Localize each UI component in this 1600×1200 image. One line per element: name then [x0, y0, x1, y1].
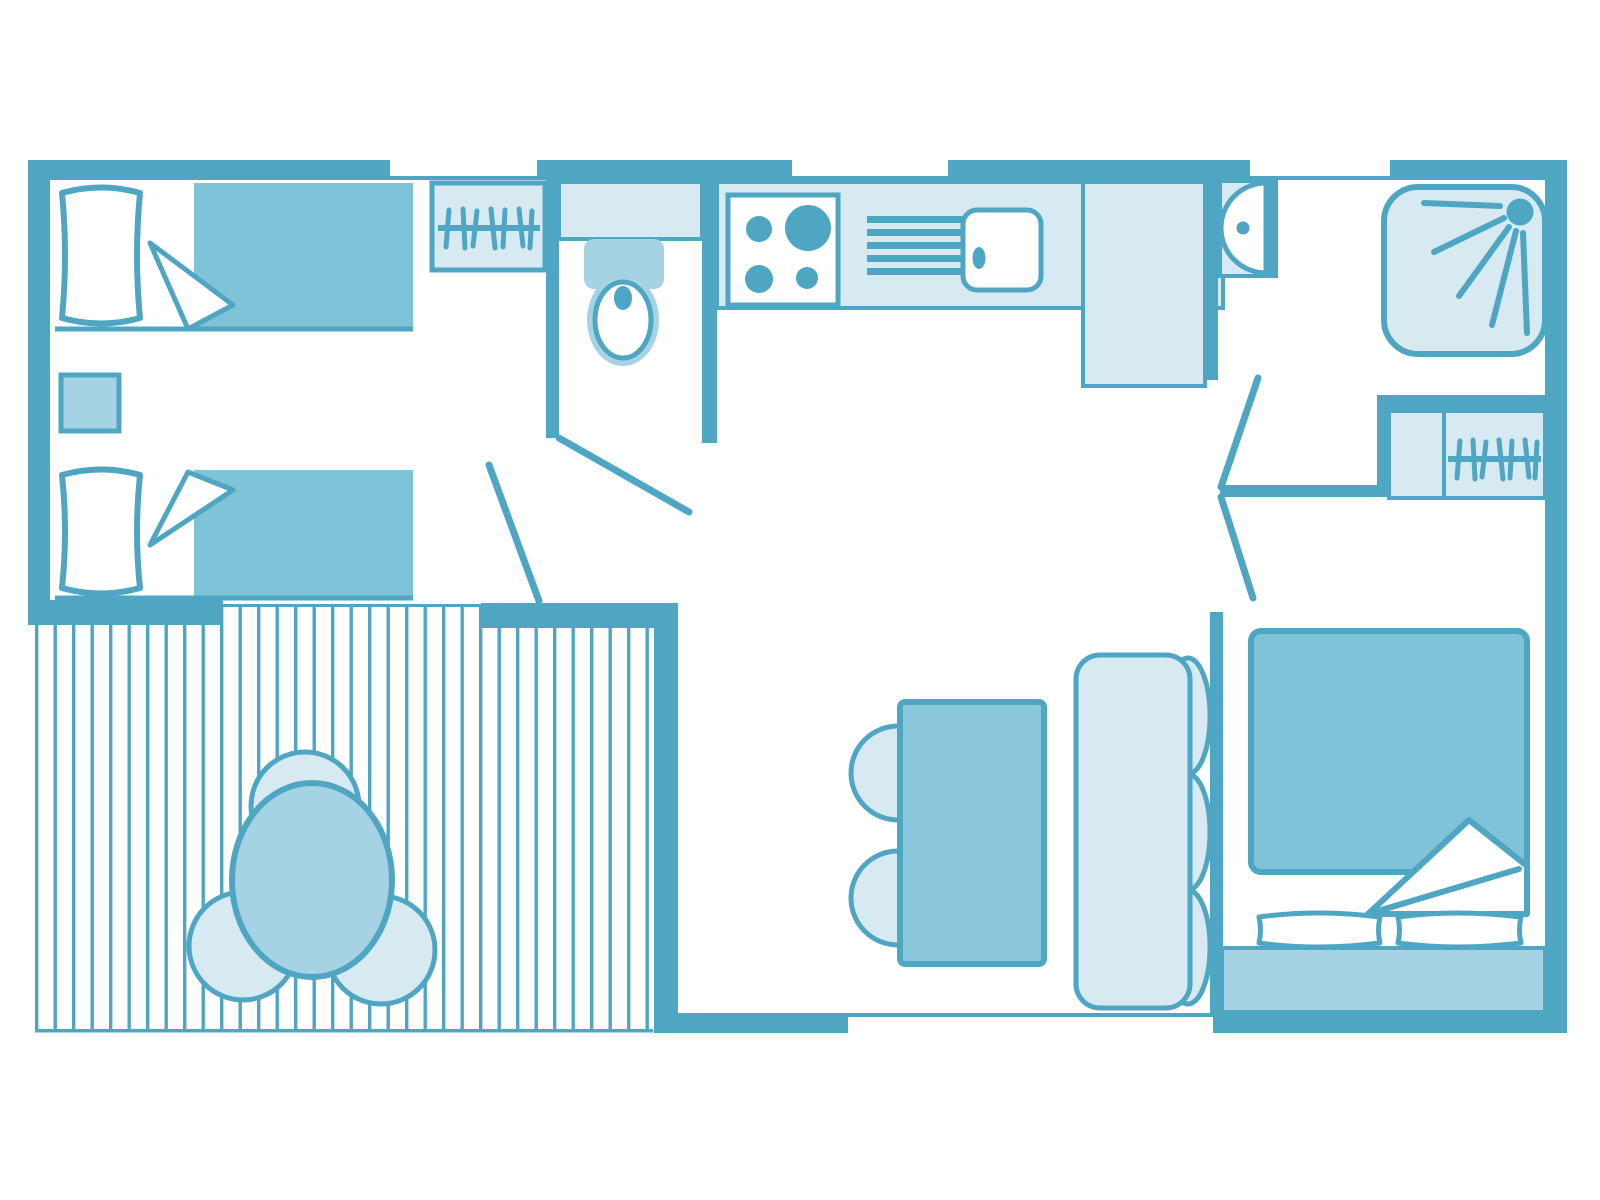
wardrobe-master-room: [1389, 411, 1545, 498]
wall-bathroom-right: [702, 175, 717, 443]
vanity-counter: [559, 182, 702, 239]
pillow: [62, 470, 140, 594]
wall-bedroom1-bottom: [28, 600, 223, 625]
pillow: [1259, 913, 1380, 947]
window-line-2: [792, 176, 948, 180]
single-bed-bottom: [55, 460, 413, 598]
door-twin-bedroom: [489, 465, 539, 601]
sink-icon: [963, 210, 1041, 290]
wall-right: [1545, 160, 1567, 1033]
hob-icon: [728, 195, 838, 305]
tall-cabinet: [1083, 182, 1205, 386]
decking-bottom-edge: [35, 1029, 653, 1033]
nightstand: [61, 375, 119, 431]
bathroom: [559, 182, 702, 366]
wardrobe-shelf: [1389, 411, 1444, 498]
decking-top-edge: [223, 604, 481, 607]
shower-head-icon: [1507, 199, 1534, 226]
bench-seat: [1076, 655, 1210, 1008]
master-bedroom: [1222, 631, 1545, 1012]
wall-shower-bottom: [1377, 395, 1545, 410]
window-line-1: [390, 176, 537, 180]
shower-room: [1384, 187, 1545, 498]
floor-plan-drawing: [0, 0, 1600, 1200]
wall-terrace-top: [481, 603, 678, 628]
wall-terrace-right: [654, 603, 678, 1033]
wardrobe-twin-room: [432, 183, 545, 270]
twin-bedroom: [55, 183, 545, 598]
toilet-icon: [587, 274, 659, 366]
wall-bottom-left-foot: [678, 1013, 848, 1033]
wall-top-1: [34, 160, 390, 180]
floor-plan-canvas: [0, 0, 1600, 1200]
door-master-upper: [1221, 378, 1258, 487]
pillow: [1398, 913, 1521, 947]
wall-hallway: [1220, 485, 1390, 497]
wall-kitchen-divider: [1205, 175, 1218, 380]
window-line-3: [1250, 176, 1390, 180]
dining-table: [900, 702, 1044, 964]
wall-left: [28, 160, 50, 625]
door-swings: [489, 378, 1258, 601]
door-master-lower: [1221, 497, 1253, 598]
living-dining: [851, 655, 1210, 1008]
wall-top-2: [537, 160, 792, 180]
kitchen: [717, 182, 1223, 386]
wall-shower-stub: [1377, 395, 1390, 495]
terrace-round-table: [232, 783, 392, 977]
pillow: [62, 188, 140, 324]
washbasin-icon: [1220, 178, 1278, 278]
bench-body: [1076, 655, 1190, 1008]
wall-top-3: [948, 160, 1250, 180]
door-bathroom: [559, 438, 689, 512]
wall-bedroom2-left: [1210, 612, 1223, 1013]
single-bed-top: [55, 183, 413, 329]
wall-top-4: [1390, 160, 1567, 180]
headboard: [1222, 948, 1545, 1012]
wall-bottom-right: [1213, 1013, 1567, 1033]
wall-bathroom-left: [546, 180, 559, 438]
